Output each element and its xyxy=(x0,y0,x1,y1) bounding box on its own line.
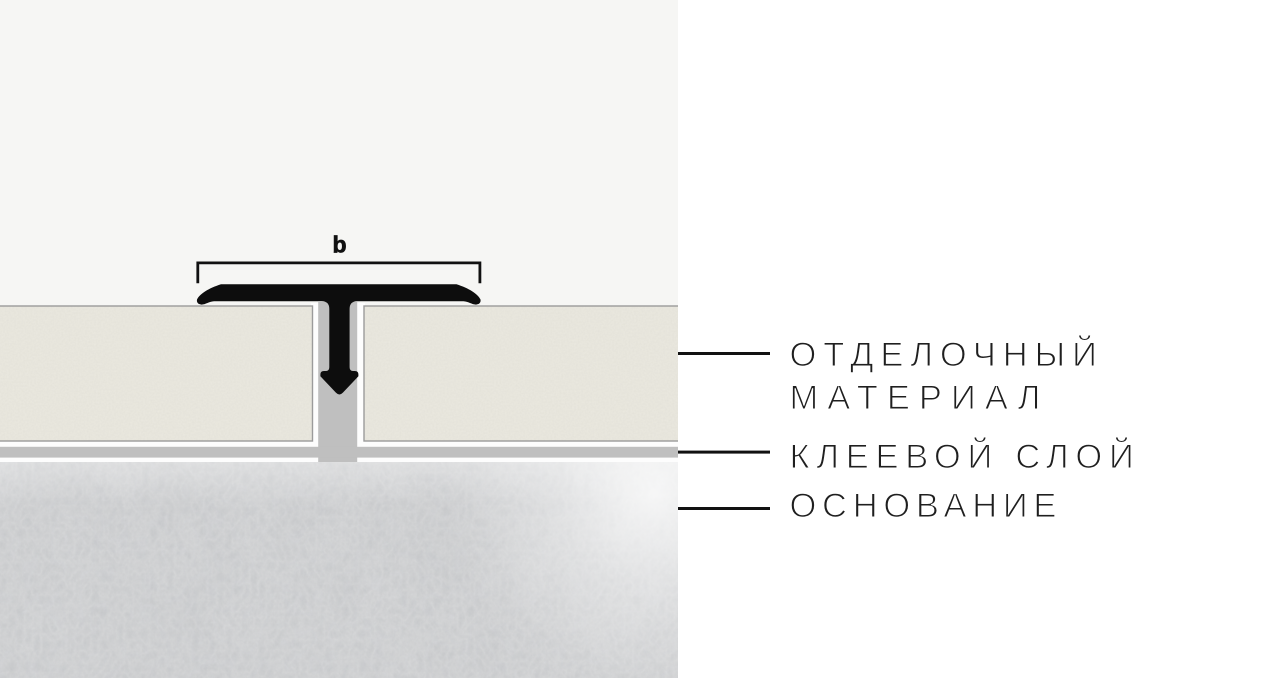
svg-text:b: b xyxy=(332,232,346,258)
